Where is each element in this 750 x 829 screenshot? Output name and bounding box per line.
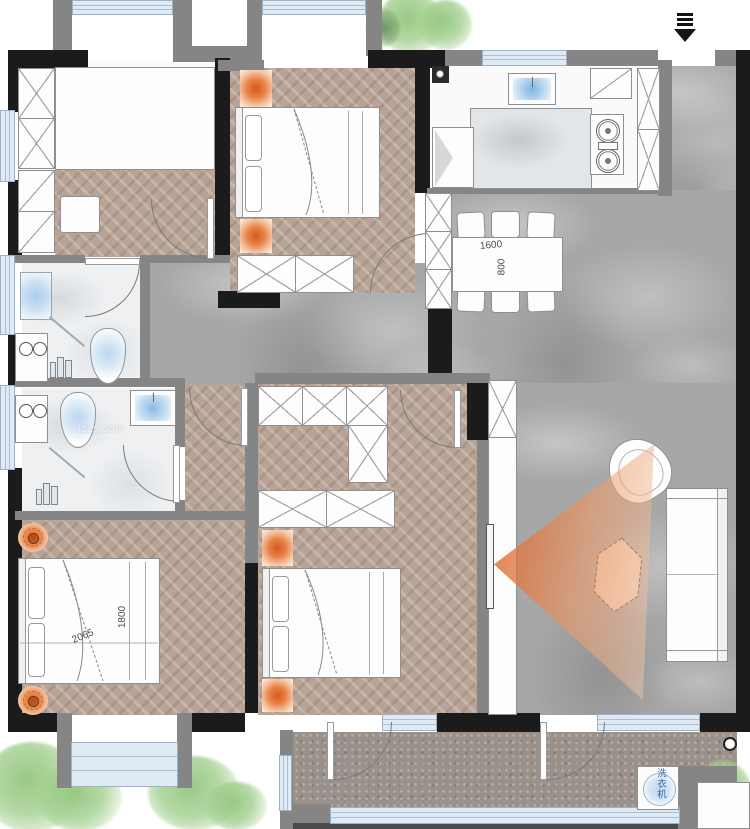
wall [736,50,750,732]
wall [140,255,230,263]
window-jamb [177,713,192,788]
kitchen-tall-cabinet [637,68,660,130]
wall [658,60,672,196]
wall [437,713,540,732]
study-wardrobe-cell [18,118,55,169]
wall [175,387,185,447]
wardrobe-middle-l [302,386,347,426]
study-bed [55,67,215,170]
window-bath1-left [0,255,15,335]
kitchen-base-cabinet [432,127,474,188]
wardrobe-middle-2 [258,490,327,528]
wardrobe-middle-l [346,386,388,426]
dining-tall-cabinet [425,269,452,309]
dining-width-label: 800 [497,259,507,276]
toiletry-bottle [65,360,72,378]
study-cabinet-cell [18,211,55,253]
bed-master [18,558,160,684]
kitchen-island [470,108,592,189]
wall [428,308,452,383]
wall [715,50,736,66]
toiletry-bottle [57,357,64,378]
window-kitchen [482,50,567,66]
wall [565,50,658,66]
kitchen-corner-dot [436,70,444,78]
toiletry-bottle [50,362,56,378]
tv-panel [486,524,494,609]
wardrobe-middle-l [348,425,388,483]
wall [245,563,258,713]
wall [15,255,85,263]
window-jamb [53,0,72,56]
wall [8,713,57,732]
wall [192,713,245,732]
wall [215,58,230,262]
watermark: .fccs.com [74,423,125,435]
wall [255,373,490,384]
wardrobe-middle-2 [326,490,395,528]
dining-chair [526,211,555,239]
wardrobe-top-bedroom [295,255,354,293]
shower-tray [20,272,52,320]
dining-chair [456,211,485,239]
wall [415,58,430,193]
wardrobe-top-bedroom [237,255,296,293]
nightstand-marker [240,219,272,253]
window-bedroom-bottom [71,742,178,787]
study-cabinet-cell [18,170,55,212]
window-jamb [247,0,262,56]
bath1-door-leaf [85,258,140,265]
wardrobe-middle-l [258,386,303,426]
blanket-fold [263,569,400,677]
nightstand-marker [262,530,293,566]
floor-drain [723,737,737,751]
nightstand-marker [240,70,272,107]
dining-tall-cabinet [425,193,452,232]
window-jamb [366,0,382,56]
exterior-panel [697,782,750,829]
wall [445,50,485,66]
window-study-bay [72,0,173,15]
sofa [666,488,728,662]
bed-middle [262,568,401,678]
dining-tall-cabinet [425,231,452,270]
floor-plan: 1600 800 .fccs.com 2065 1800 [0,0,750,829]
wall [15,511,245,520]
entry-arrow-icon [674,13,696,43]
stove [590,114,624,175]
blanket-fold [236,108,379,217]
toiletry-bottle [36,489,42,505]
kitchen-tall-cabinet [637,129,660,191]
blanket-fold [19,559,159,683]
study-door-leaf [207,198,214,259]
window-jamb [57,713,72,788]
window-bedroom-bay [262,0,366,15]
hall-cabinet [488,380,517,438]
wall [218,291,280,308]
bath2-door-leaf [173,445,180,503]
nightstand-marker [262,679,293,712]
window-study-left [0,110,15,182]
toiletry-bottle [43,483,50,505]
washing-machine-label: 洗衣机 [653,768,667,810]
balcony-door-bedroom-leaf [327,722,334,780]
wall [700,713,737,732]
dining-chair [491,211,520,238]
wall-lamp-marker [18,686,48,715]
dining-length-label: 1600 [480,240,503,252]
tree-bottom-mid-2 [205,782,267,829]
bed-width-label: 1800 [118,606,128,628]
vanity [15,395,48,443]
bed-top [235,107,380,218]
study-cushion [60,196,100,233]
kitchen-corner-cabinet [590,68,632,99]
balcony-door-living-leaf [540,722,547,780]
bedroom-left-door-leaf [241,388,248,446]
bedroom-middle-door-leaf [454,390,461,448]
bathroom-sink [130,390,176,426]
wall [140,263,150,382]
tree-top-2 [420,0,472,50]
dining-table [452,237,563,292]
window-balcony-left [279,755,292,811]
wall [467,383,490,440]
wall-lamp-marker [18,523,48,552]
kitchen-sink [508,73,556,105]
window-living-balcony [597,714,700,731]
vanity [15,333,48,382]
toiletry-bottle [51,486,58,505]
window-bath2-left [0,385,15,470]
window-balcony-bottom [330,807,680,824]
study-wardrobe-cell [18,68,55,119]
